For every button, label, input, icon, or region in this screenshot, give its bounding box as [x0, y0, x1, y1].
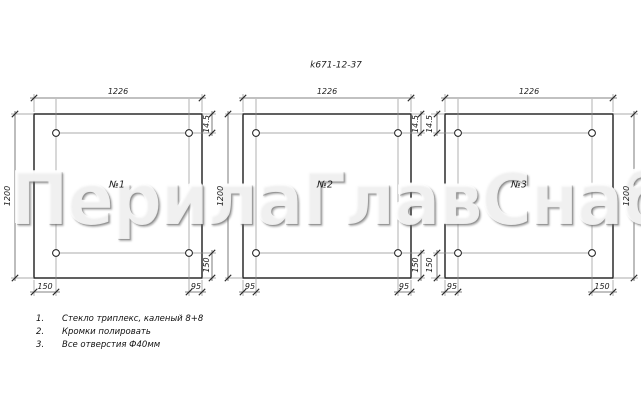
hole	[53, 250, 60, 257]
panel-2-drawing	[225, 94, 425, 296]
panel-3-label: №3	[511, 180, 527, 190]
dim-bottom-left-panel-3: 95	[447, 283, 457, 291]
dim-width-panel-1: 1226	[108, 88, 128, 96]
drawing-number: k671-12-37	[310, 62, 362, 71]
panel-2-label: №2	[317, 180, 333, 190]
notes-list: 1. Стекло триплекс, каленый 8+8 2. Кромк…	[36, 312, 203, 351]
hole	[53, 130, 60, 137]
dim-bottom-right-panel-2: 95	[399, 283, 409, 291]
dim-bottom-left-panel-1: 150	[37, 283, 52, 291]
note-text: Стекло триплекс, каленый 8+8	[62, 314, 203, 324]
hole	[455, 130, 462, 137]
hole	[455, 250, 462, 257]
hole	[395, 130, 402, 137]
dim-bottom-right-panel-3: 150	[594, 283, 609, 291]
panel-2-outline	[243, 114, 411, 278]
panel-3-outline	[445, 114, 613, 278]
dim-hole-bottom-panel-1: 150	[203, 257, 211, 272]
dim-bottom-left-panel-2: 95	[245, 283, 255, 291]
hole	[589, 250, 596, 257]
note-number: 1.	[36, 314, 62, 324]
drawing-sheet: ПерилаГлавСнаб k671-12-37 1226 1200 14.5…	[0, 0, 641, 410]
dim-bottom-right-panel-1: 95	[191, 283, 201, 291]
dim-width-panel-3: 1226	[519, 88, 539, 96]
note-text: Все отверстия Ф40мм	[62, 340, 160, 350]
dim-hole-top-panel-3: 14.5	[426, 115, 434, 133]
note-number: 2.	[36, 327, 62, 337]
dim-hole-bottom-panel-2: 150	[412, 257, 420, 272]
dim-hole-bottom-panel-3: 150	[426, 257, 434, 272]
panel-1-label: №1	[109, 180, 125, 190]
panel-1-drawing	[11, 94, 216, 296]
note-row: 3. Все отверстия Ф40мм	[36, 338, 203, 351]
hole	[253, 130, 260, 137]
dim-hole-top-panel-2: 14.5	[412, 115, 420, 133]
note-text: Кромки полировать	[62, 327, 151, 337]
hole	[589, 130, 596, 137]
panel-3-drawing	[431, 94, 638, 296]
note-row: 1. Стекло триплекс, каленый 8+8	[36, 312, 203, 325]
dim-height-panel-1: 1200	[4, 186, 12, 206]
note-row: 2. Кромки полировать	[36, 325, 203, 338]
dim-hole-top-panel-1: 14.5	[203, 115, 211, 133]
hole	[253, 250, 260, 257]
hole	[186, 250, 193, 257]
note-number: 3.	[36, 340, 62, 350]
dim-height-panel-2: 1200	[217, 186, 225, 206]
hole	[186, 130, 193, 137]
dim-width-panel-2: 1226	[317, 88, 337, 96]
dim-height-panel-3: 1200	[623, 186, 631, 206]
hole	[395, 250, 402, 257]
